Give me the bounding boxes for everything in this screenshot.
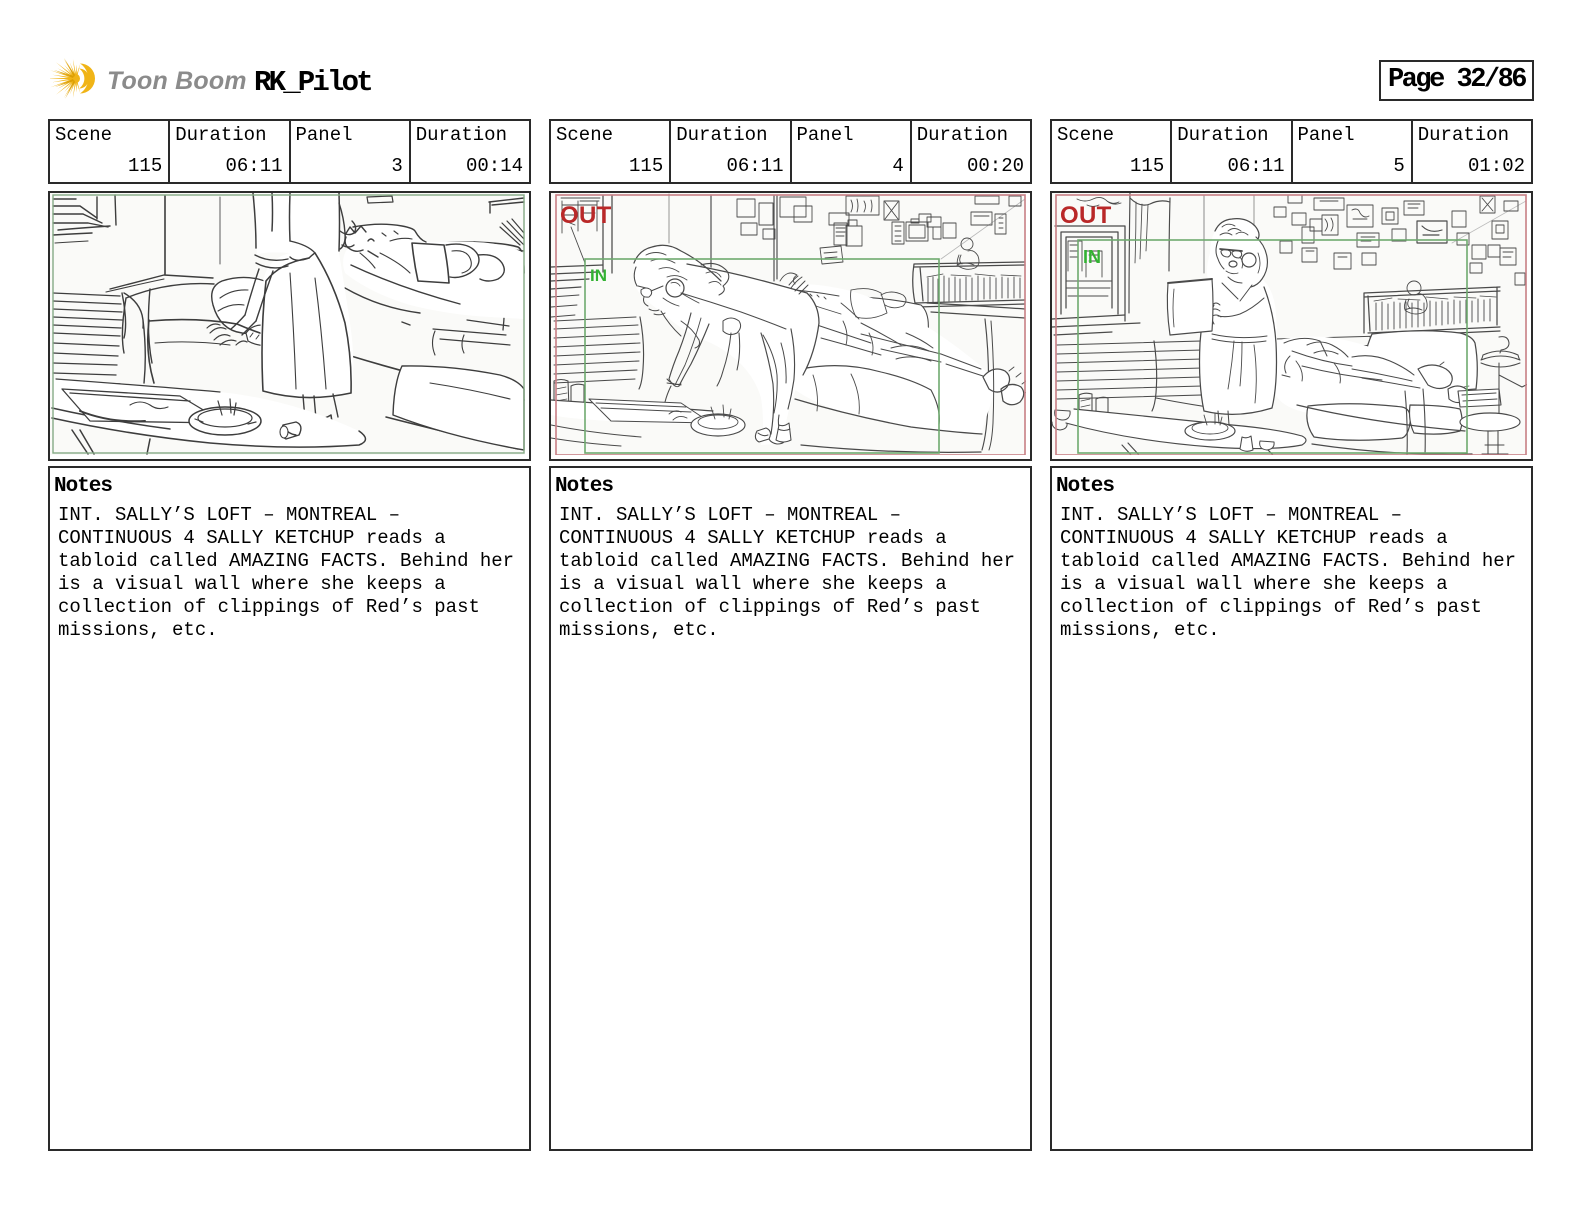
svg-text:Toon Boom: Toon Boom xyxy=(107,67,247,95)
svg-text:OUT: OUT xyxy=(1060,202,1112,229)
svg-text:IN: IN xyxy=(590,266,607,285)
svg-text:OUT: OUT xyxy=(560,202,612,229)
svg-text:IN: IN xyxy=(1083,247,1101,267)
